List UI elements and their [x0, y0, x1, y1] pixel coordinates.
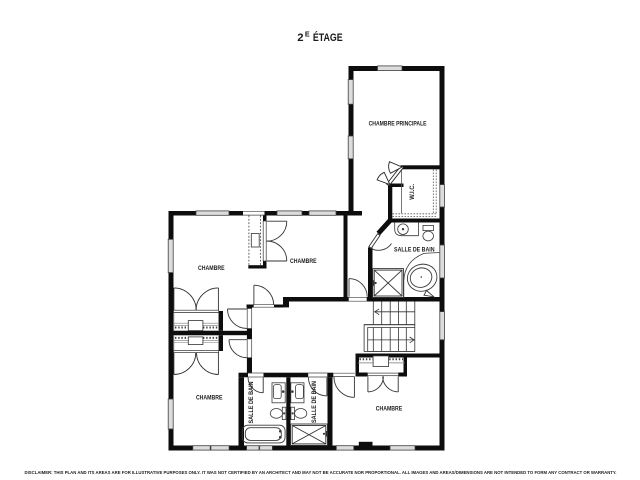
svg-text:CHAMBRE: CHAMBRE [198, 265, 225, 272]
svg-text:2: 2 [297, 32, 303, 44]
svg-text:SALLE DE BAIN: SALLE DE BAIN [248, 381, 255, 423]
svg-text:CHAMBRE: CHAMBRE [376, 406, 403, 413]
svg-text:CHAMBRE: CHAMBRE [196, 395, 223, 402]
svg-text:SALLE DE BAIN: SALLE DE BAIN [394, 247, 435, 254]
svg-text:W.I.C.: W.I.C. [409, 184, 416, 200]
svg-text:SALLE DE BAIN: SALLE DE BAIN [311, 381, 318, 423]
svg-text:CHAMBRE PRINCIPALE: CHAMBRE PRINCIPALE [369, 122, 427, 128]
svg-text:ÉTAGE: ÉTAGE [313, 31, 343, 44]
svg-text:E: E [305, 30, 310, 39]
svg-text:DISCLAIMER: THIS PLAN AND ITS: DISCLAIMER: THIS PLAN AND ITS AREAS ARE … [25, 470, 617, 475]
svg-text:CHAMBRE: CHAMBRE [290, 258, 317, 265]
